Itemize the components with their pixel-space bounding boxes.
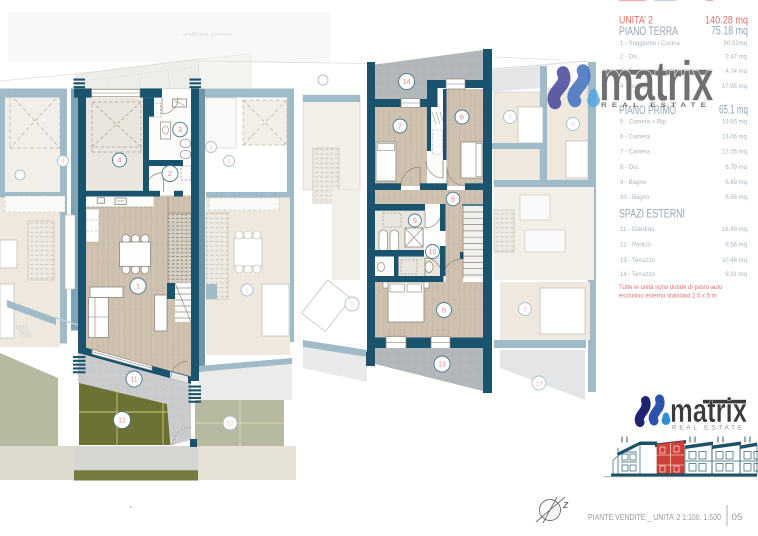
svg-text:12: 12 [118,418,126,425]
svg-text:10 - Bagno: 10 - Bagno [620,195,650,201]
svg-text:2: 2 [168,169,172,178]
svg-text:1: 1 [136,282,140,291]
svg-text:3: 3 [178,125,182,134]
svg-text:16.49 mq: 16.49 mq [722,227,747,233]
svg-text:6: 6 [460,113,464,122]
svg-text:REAL ESTATE: REAL ESTATE [601,102,711,109]
svg-text:9.56 mq: 9.56 mq [725,242,747,248]
svg-text:12 - Portico: 12 - Portico [620,242,651,248]
svg-text:11: 11 [130,377,137,384]
svg-text:2.47 mq: 2.47 mq [725,55,747,61]
svg-text:7: 7 [508,114,512,121]
svg-text:8 - Dis.: 8 - Dis. [620,165,639,171]
svg-text:z: z [562,499,569,511]
svg-text:viabilità privata: viabilità privata [183,32,233,38]
svg-text:6 - Camera: 6 - Camera [620,135,651,141]
svg-text:5: 5 [442,306,446,315]
svg-text:PIANO TERRA: PIANO TERRA [619,24,678,38]
svg-text:65.1 mq: 65.1 mq [719,103,748,117]
svg-text:4: 4 [227,158,231,165]
svg-text:esclusivo esterno standard 2.5: esclusivo esterno standard 2.5 x 5 m [619,294,717,300]
svg-text:4.74 mq: 4.74 mq [725,69,747,75]
svg-text:13: 13 [535,380,543,387]
svg-text:10: 10 [429,249,437,256]
svg-text:13: 13 [438,362,446,369]
svg-text:5 - Camera + Rip.: 5 - Camera + Rip. [620,120,668,126]
svg-text:12: 12 [226,420,234,427]
svg-text:14 - Terrazzo: 14 - Terrazzo [620,272,656,278]
svg-text:2: 2 [350,301,354,308]
svg-text:19.65 mq: 19.65 mq [722,120,747,126]
svg-text:10.48 mq: 10.48 mq [722,258,747,264]
svg-text:17.95 mq: 17.95 mq [722,84,747,90]
svg-text:6: 6 [571,121,575,128]
svg-text:9.91 mq: 9.91 mq [725,272,747,278]
svg-text:13 - Terrazzo: 13 - Terrazzo [620,258,656,264]
svg-text:7: 7 [398,122,402,131]
svg-text:REAL ESTATE: REAL ESTATE [672,426,745,432]
svg-text:4: 4 [61,158,65,165]
svg-text:1: 1 [245,287,249,294]
svg-text:75.18 mq: 75.18 mq [711,24,748,38]
svg-text:3: 3 [209,144,213,151]
svg-text:PIANTE VENDITE _ UNITA’ 2 1:10: PIANTE VENDITE _ UNITA’ 2 1:100. 1:500 [588,513,721,522]
svg-text:6.86 mq: 6.86 mq [725,195,747,201]
svg-text:13.06 mq: 13.06 mq [722,135,747,141]
svg-text:Tutte le unità sono dotate di: Tutte le unità sono dotate di posto auto [619,285,723,291]
svg-text:05: 05 [732,512,743,522]
svg-text:11 - Giardino: 11 - Giardino [620,227,655,233]
svg-text:4: 4 [117,156,121,165]
svg-text:6.69 mq: 6.69 mq [725,180,747,186]
svg-text:50.02mq: 50.02mq [724,41,747,47]
svg-text:matrix: matrix [670,392,747,430]
svg-text:SPAZI ESTERNI: SPAZI ESTERNI [619,207,685,221]
svg-text:9 - Bagno: 9 - Bagno [620,180,647,186]
svg-text:7 - Camera: 7 - Camera [620,150,651,156]
svg-text:9: 9 [413,216,417,225]
svg-text:6.79 mq: 6.79 mq [725,165,747,171]
svg-text:14: 14 [403,79,411,86]
svg-text:1 - Soggiorno / Cucina: 1 - Soggiorno / Cucina [620,41,680,47]
svg-text:5: 5 [523,306,527,313]
svg-text:8: 8 [451,195,455,204]
svg-text:12.05 mq: 12.05 mq [722,150,747,156]
